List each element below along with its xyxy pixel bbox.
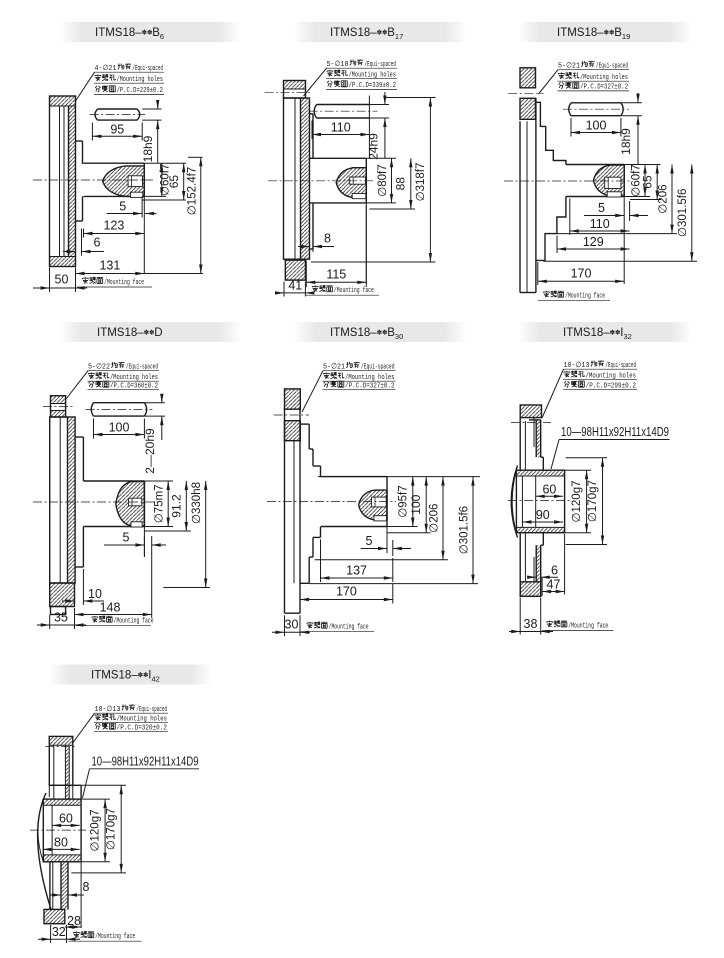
svg-text:8: 8: [83, 880, 90, 894]
svg-text:/Equi-spaced: /Equi-spaced: [364, 61, 396, 69]
svg-text:90: 90: [536, 508, 550, 522]
svg-text:/Mounting face: /Mounting face: [104, 279, 144, 287]
svg-text:/P.C.D=339±0.2: /P.C.D=339±0.2: [349, 82, 397, 90]
svg-text:170: 170: [571, 267, 592, 281]
svg-text:110: 110: [331, 121, 351, 135]
svg-text:5: 5: [119, 199, 126, 213]
svg-text:/Mounting holes: /Mounting holes: [586, 373, 636, 381]
svg-text:148: 148: [100, 601, 121, 615]
svg-text:6: 6: [94, 236, 101, 250]
svg-text:18h9: 18h9: [141, 135, 155, 162]
svg-text:/Equi-spaced: /Equi-spaced: [126, 364, 158, 372]
svg-text:/P.C.D=320±0.2: /P.C.D=320±0.2: [117, 725, 168, 733]
svg-text:10: 10: [88, 587, 102, 601]
svg-text:35: 35: [54, 611, 68, 625]
svg-text:18h9: 18h9: [619, 128, 633, 155]
svg-text:6: 6: [551, 563, 558, 577]
svg-text:38: 38: [524, 617, 538, 631]
svg-text:/Mounting holes: /Mounting holes: [580, 74, 628, 82]
svg-text:/Mounting holes: /Mounting holes: [110, 374, 158, 382]
svg-text:5-∅18: 5-∅18: [327, 60, 349, 69]
svg-text:/Mounting face: /Mounting face: [568, 622, 608, 630]
svg-text:24h9: 24h9: [367, 133, 381, 160]
svg-text:/P.C.D=360±0.2: /P.C.D=360±0.2: [110, 383, 158, 391]
svg-text:131: 131: [99, 259, 120, 273]
svg-text:/Mounting holes: /Mounting holes: [349, 72, 396, 80]
svg-text:10-∅13: 10-∅13: [564, 361, 590, 370]
svg-text:47: 47: [547, 577, 561, 591]
svg-text:/P.C.D=327±0.2: /P.C.D=327±0.2: [345, 383, 395, 391]
svg-text:123: 123: [103, 219, 124, 233]
svg-text:∅120g7: ∅120g7: [90, 810, 102, 852]
svg-text:115: 115: [326, 267, 346, 281]
svg-text:50: 50: [55, 273, 69, 287]
svg-text:100: 100: [586, 119, 607, 133]
svg-text:∅170g7: ∅170g7: [587, 480, 599, 522]
svg-text:41: 41: [288, 278, 302, 292]
svg-text:/P.C.D=327±0.2: /P.C.D=327±0.2: [580, 84, 628, 92]
svg-text:137: 137: [346, 564, 367, 578]
svg-text:5: 5: [598, 201, 605, 215]
svg-text:170: 170: [336, 585, 357, 599]
svg-text:/Mounting face: /Mounting face: [95, 933, 135, 941]
svg-text:10—98H11x92H11x14D9: 10—98H11x92H11x14D9: [561, 425, 669, 439]
svg-text:100: 100: [109, 421, 130, 435]
svg-text:91.2: 91.2: [170, 494, 184, 518]
svg-text:∅318f7: ∅318f7: [415, 163, 427, 202]
svg-text:110: 110: [590, 217, 610, 231]
svg-text:∅206: ∅206: [428, 504, 440, 533]
svg-text:10—98H11x92H11x14D9: 10—98H11x92H11x14D9: [92, 755, 199, 769]
svg-text:60: 60: [542, 482, 556, 496]
svg-text:∅170g7: ∅170g7: [106, 808, 118, 850]
svg-text:/P.C.D=299±0.2: /P.C.D=299±0.2: [586, 383, 637, 391]
svg-text:/Mounting holes: /Mounting holes: [117, 716, 167, 724]
svg-text:/Mounting holes: /Mounting holes: [345, 374, 394, 382]
svg-text:65: 65: [167, 175, 181, 189]
svg-text:129: 129: [583, 235, 604, 249]
svg-text:95: 95: [110, 122, 124, 136]
svg-text:4-∅21: 4-∅21: [95, 64, 117, 73]
svg-text:/Equi-spaced: /Equi-spaced: [605, 362, 636, 370]
svg-text:/Equi-spaced: /Equi-spaced: [596, 63, 628, 71]
svg-text:/Mounting face: /Mounting face: [329, 624, 369, 632]
svg-text:∅152.4f7: ∅152.4f7: [186, 167, 198, 215]
svg-text:∅95f7: ∅95f7: [397, 485, 409, 517]
svg-text:5: 5: [123, 531, 130, 545]
svg-text:∅301.5f6: ∅301.5f6: [677, 189, 689, 237]
svg-text:60: 60: [59, 811, 73, 825]
svg-text:32: 32: [52, 925, 66, 939]
svg-text:/Mounting face: /Mounting face: [565, 293, 605, 301]
svg-text:/Mounting face: /Mounting face: [334, 287, 374, 295]
svg-text:∅75m7: ∅75m7: [154, 484, 166, 523]
svg-text:/Equi-spaced: /Equi-spaced: [132, 65, 163, 73]
svg-text:5-∅21: 5-∅21: [558, 62, 580, 71]
svg-text:/Equi-spaced: /Equi-spaced: [136, 706, 167, 714]
svg-text:28: 28: [67, 914, 81, 928]
svg-text:80: 80: [54, 835, 68, 849]
svg-text:2—20h9: 2—20h9: [143, 428, 157, 474]
svg-text:100: 100: [409, 494, 423, 514]
svg-text:8: 8: [324, 232, 331, 246]
svg-text:5-∅22: 5-∅22: [88, 363, 110, 372]
svg-text:10-∅13: 10-∅13: [95, 705, 121, 714]
svg-text:∅206: ∅206: [658, 184, 670, 213]
svg-text:∅301.5f6: ∅301.5f6: [458, 506, 470, 554]
svg-text:/Mounting face: /Mounting face: [114, 618, 154, 626]
svg-text:/Equi-spaced: /Equi-spaced: [361, 364, 395, 372]
svg-text:88: 88: [394, 177, 408, 191]
svg-text:5: 5: [366, 534, 373, 548]
svg-text:/P.C.D=229±0.2: /P.C.D=229±0.2: [117, 87, 164, 95]
svg-text:/Mounting holes: /Mounting holes: [117, 76, 163, 84]
svg-text:65: 65: [641, 175, 655, 189]
svg-text:∅80f7: ∅80f7: [377, 164, 389, 196]
svg-text:5-∅21: 5-∅21: [323, 363, 345, 372]
svg-text:30: 30: [285, 617, 299, 631]
svg-text:∅330h8: ∅330h8: [191, 482, 203, 524]
svg-text:∅120g7: ∅120g7: [571, 481, 583, 523]
